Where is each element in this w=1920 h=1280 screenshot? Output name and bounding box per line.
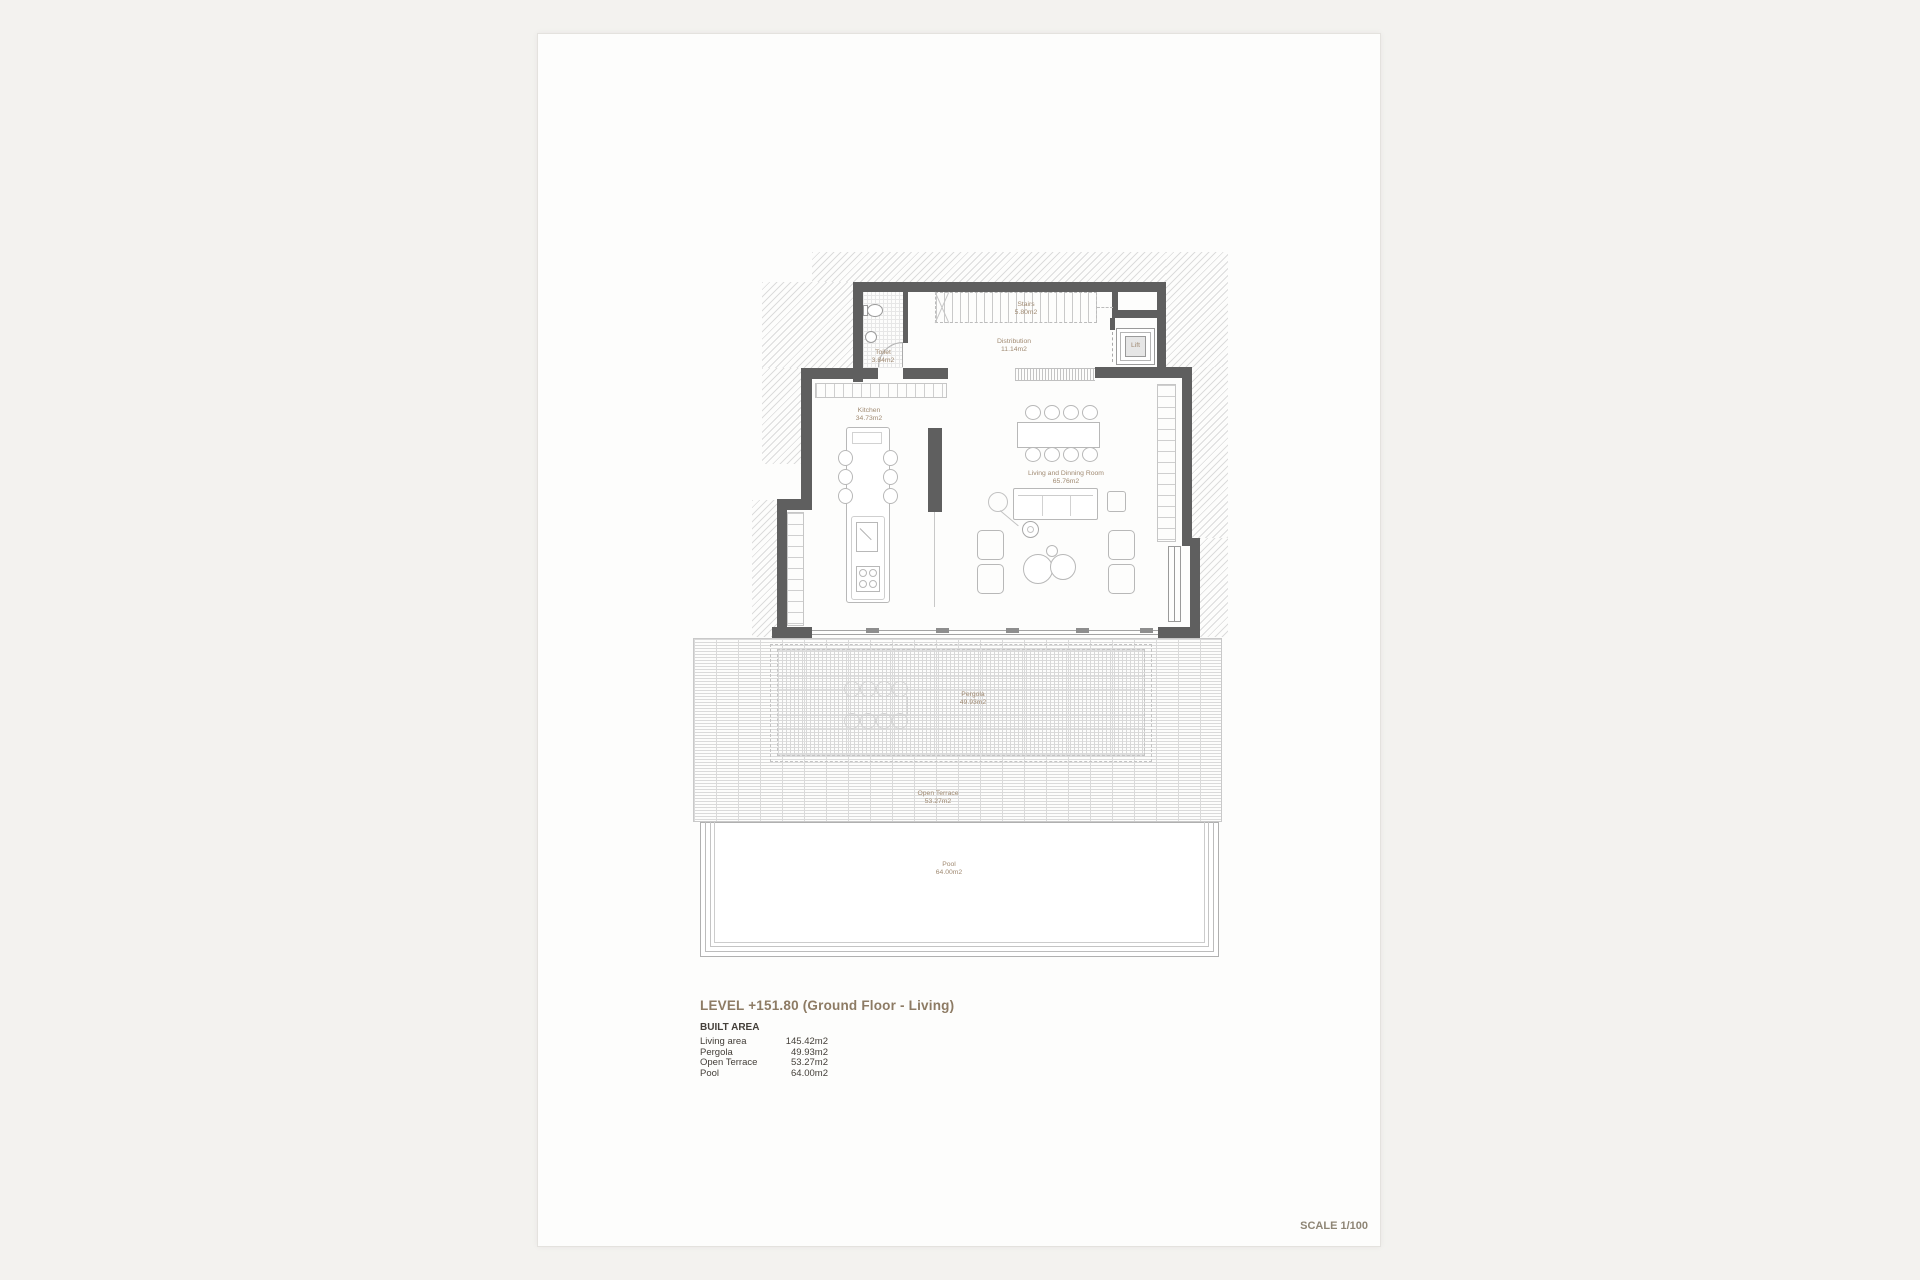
hatch-top	[812, 252, 1166, 282]
floor-plan: Lift Toilet 3.84m2	[0, 0, 1920, 1280]
wall-kitchen-north-b	[903, 368, 948, 379]
glass-door-tick	[1006, 628, 1019, 633]
burner	[869, 580, 877, 588]
glass-door-line	[812, 630, 1158, 631]
kitchen-stool	[838, 488, 853, 504]
kitchen-stool	[883, 469, 898, 485]
area-row: Pool 64.00m2	[700, 1069, 828, 1080]
wall-east-upper	[1157, 282, 1166, 367]
built-area-heading: BUILT AREA	[700, 1022, 1000, 1033]
kitchen-stool	[838, 450, 853, 466]
burner	[859, 569, 867, 577]
wall-east-lower	[1190, 538, 1200, 628]
floor-lamp	[988, 492, 1008, 512]
sofa-seat-divider	[1042, 496, 1043, 516]
outdoor-chair	[892, 681, 908, 697]
toilet-wc-tank	[863, 305, 868, 316]
outdoor-chair	[860, 681, 876, 697]
hatch-left-lower	[752, 500, 777, 637]
pergola-label: Pergola 49.93m2	[933, 691, 1013, 708]
plan-title: LEVEL +151.80 (Ground Floor - Living)	[700, 998, 1000, 1013]
dining-chair	[1044, 447, 1060, 462]
lift-shaft: Lift	[1116, 328, 1155, 365]
dining-chair	[1082, 447, 1098, 462]
kitchen-stool	[838, 469, 853, 485]
outdoor-table	[846, 696, 908, 716]
stairs-label: Stairs 5.80m2	[986, 301, 1066, 318]
wall-kitchen-partition	[928, 428, 942, 512]
sofa	[1013, 488, 1098, 520]
wall-west-lower	[777, 499, 787, 638]
sofa-back-line	[1018, 495, 1093, 496]
wall-kitchen-north-a	[801, 368, 878, 379]
wall-ne-room-south	[1113, 310, 1157, 318]
kitchen-stool	[883, 450, 898, 466]
stair-dashed-ext	[1097, 307, 1113, 308]
west-window	[787, 512, 804, 626]
coffee-table	[1022, 521, 1039, 538]
glass-door-tick	[1076, 628, 1089, 633]
open-terrace-label: Open Terrace 53.27m2	[898, 790, 978, 807]
side-table	[1107, 491, 1126, 512]
lift-door-dash	[1112, 332, 1113, 362]
island-detail	[852, 432, 882, 444]
dining-chair	[1025, 447, 1041, 462]
armchair	[1108, 530, 1135, 560]
armchair	[977, 530, 1004, 560]
toilet-label: Toilet 3.84m2	[853, 349, 913, 366]
armchair	[1108, 564, 1135, 594]
lift-label: Lift	[1131, 342, 1140, 350]
outdoor-chair	[876, 681, 892, 697]
dining-table	[1017, 422, 1100, 448]
built-area-table: Living area 145.42m2 Pergola 49.93m2 Ope…	[700, 1037, 1000, 1079]
sofa-seat-divider	[1070, 496, 1071, 516]
glass-door-tick	[866, 628, 879, 633]
pool-ring	[714, 822, 1205, 943]
hatch-right-mid	[1192, 367, 1228, 538]
floor-grill	[1015, 368, 1095, 381]
title-block: LEVEL +151.80 (Ground Floor - Living) BU…	[700, 998, 1000, 1079]
dining-chair	[1044, 405, 1060, 420]
wall-southwest-corner	[772, 627, 812, 638]
area-row: Living area 145.42m2	[700, 1037, 828, 1048]
wall-east-mid	[1182, 378, 1192, 545]
armchair	[977, 564, 1004, 594]
wall-lift-lobby-stub	[1110, 318, 1115, 330]
partition-line	[934, 512, 935, 607]
dining-chair	[1063, 405, 1079, 420]
kitchen-label: Kitchen 34.73m2	[829, 407, 909, 424]
wall-west-toilet	[853, 282, 863, 382]
hatch-left-mid	[762, 368, 801, 464]
wall-below-lift	[1095, 367, 1192, 378]
pool-label: Pool 64.00m2	[909, 861, 989, 878]
glass-door-line	[812, 634, 1158, 635]
distribution-label: Distribution 11.14m2	[974, 338, 1054, 355]
wall-southeast-corner	[1158, 627, 1200, 638]
scale-label: SCALE 1/100	[1240, 1220, 1368, 1232]
burner	[859, 580, 867, 588]
wall-kitchen-west	[801, 368, 812, 501]
kitchen-stool	[883, 488, 898, 504]
burner	[869, 569, 877, 577]
east-shelf-window	[1157, 384, 1176, 542]
dining-chair	[1025, 405, 1041, 420]
living-room-label: Living and Dinning Room 65.76m2	[1016, 470, 1116, 487]
dining-chair	[1082, 405, 1098, 420]
wall-north	[853, 282, 1166, 292]
dining-chair	[1063, 447, 1079, 462]
lift-car: Lift	[1125, 336, 1146, 357]
glass-door-tick	[1140, 628, 1153, 633]
outdoor-chair	[844, 681, 860, 697]
toilet-wc	[867, 304, 883, 317]
toilet-sink	[865, 331, 877, 343]
glass-door-tick	[936, 628, 949, 633]
east-window-lower	[1168, 546, 1181, 622]
hatch-left-upper	[762, 282, 853, 368]
hatch-right-lower	[1200, 538, 1228, 637]
kitchen-window	[815, 383, 947, 398]
coffee-table-inner	[1027, 526, 1034, 533]
hatch-right-upper	[1166, 252, 1228, 367]
pouf	[1023, 554, 1053, 584]
pouf	[1050, 554, 1076, 580]
wall-toilet-east	[903, 292, 908, 343]
